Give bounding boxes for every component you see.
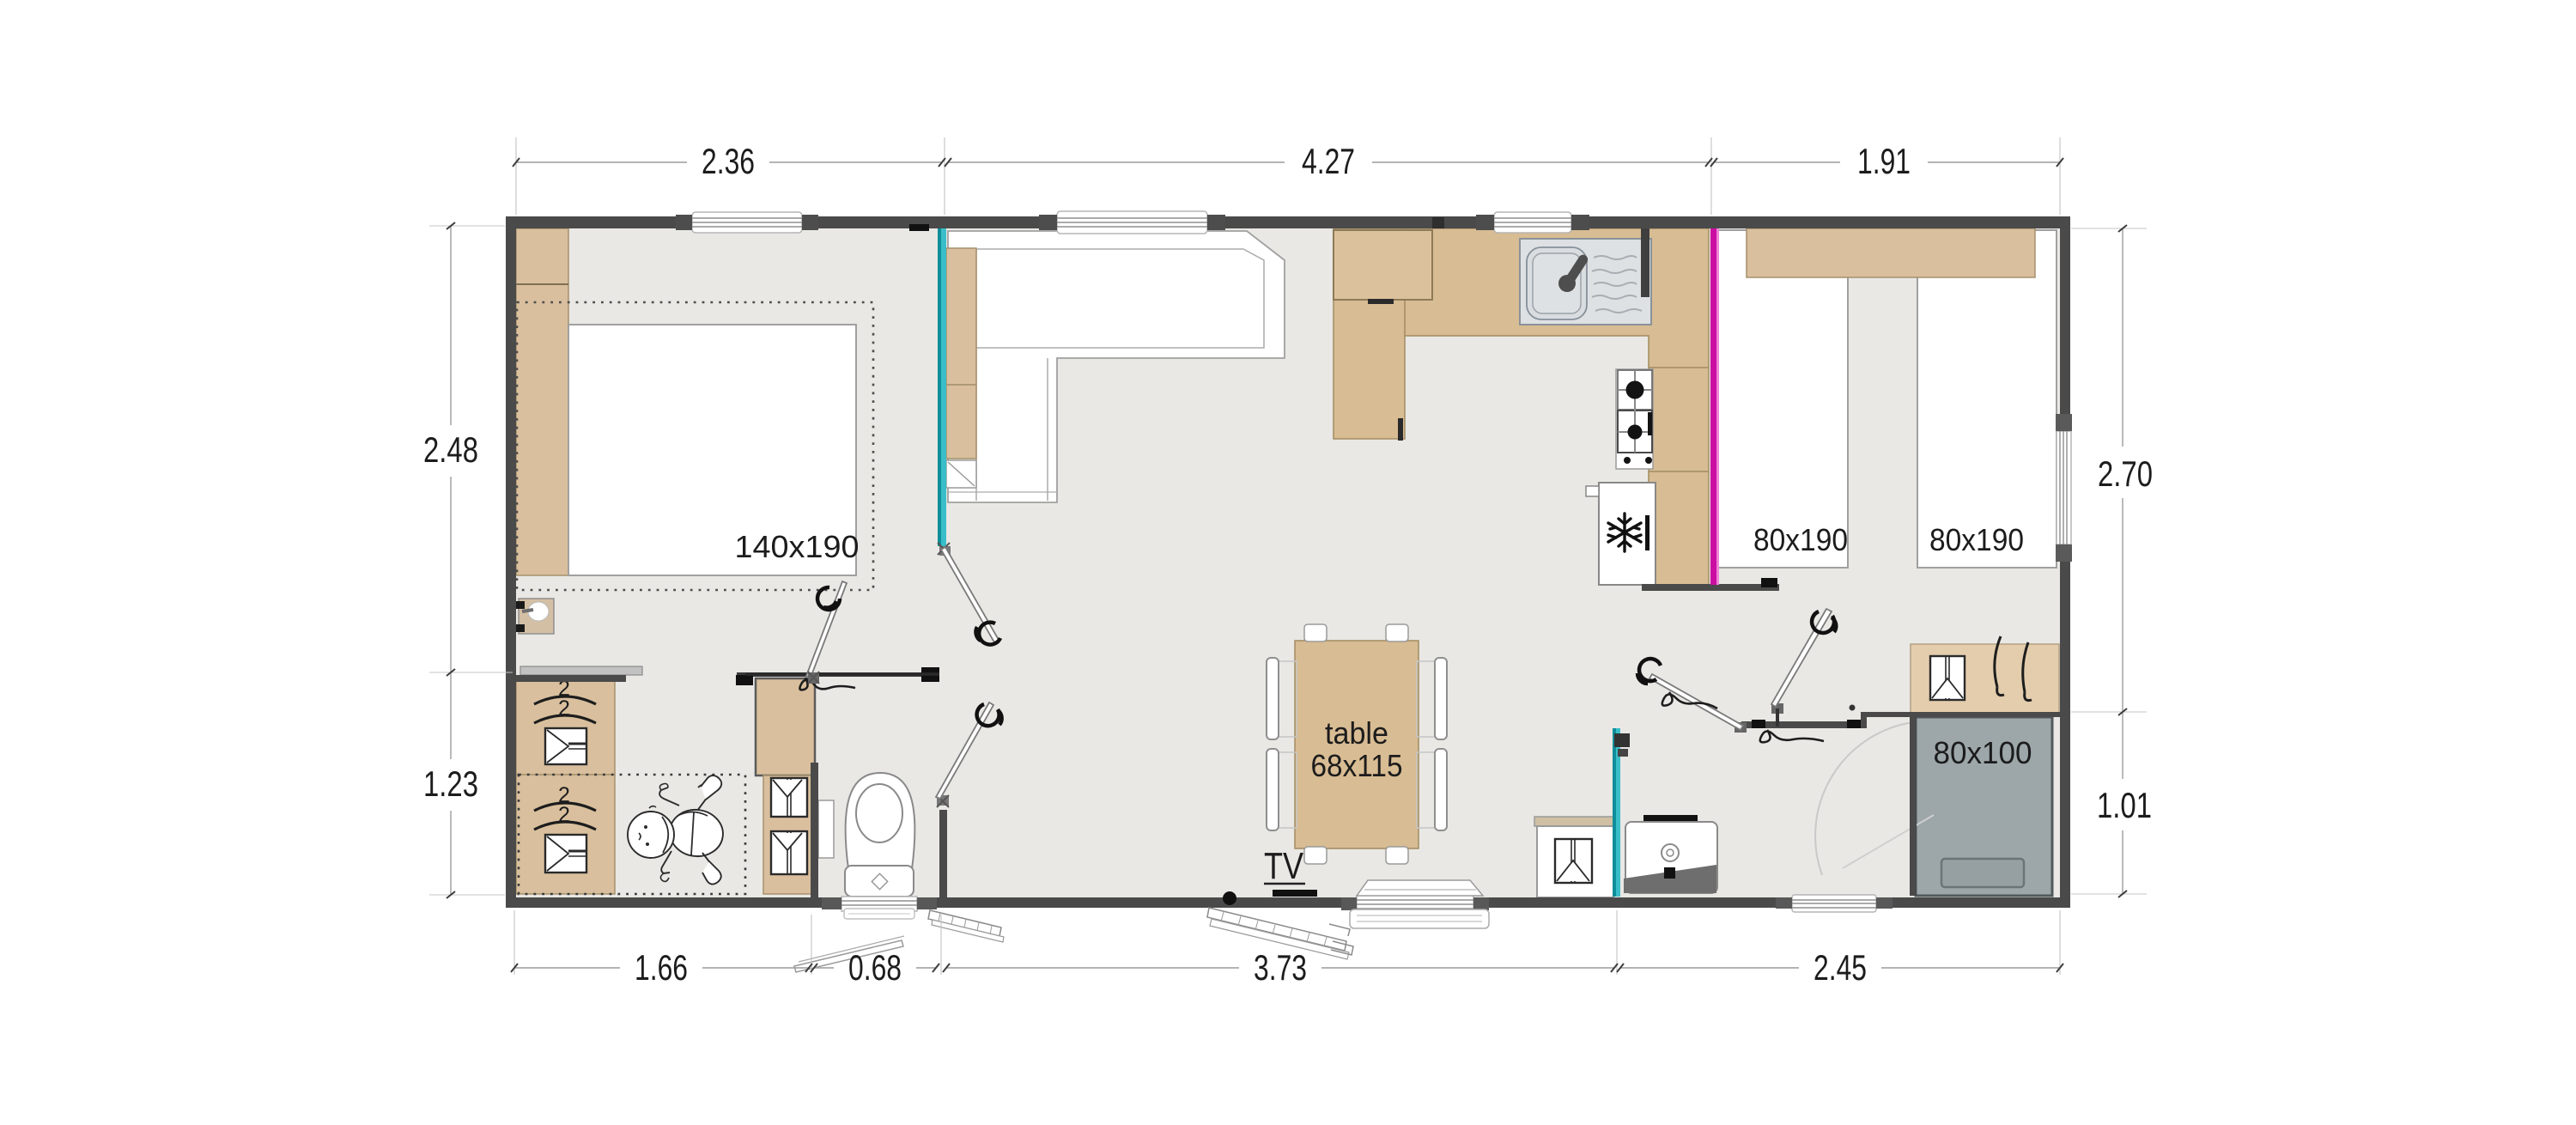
svg-text:2.70: 2.70 xyxy=(2098,453,2153,494)
svg-text:table: table xyxy=(1325,715,1388,751)
svg-text:1.66: 1.66 xyxy=(635,947,688,988)
svg-text:1.23: 1.23 xyxy=(423,763,478,804)
svg-text:2.45: 2.45 xyxy=(1814,947,1867,988)
svg-text:80x100: 80x100 xyxy=(1934,735,2032,770)
svg-text:4.27: 4.27 xyxy=(1302,141,1355,181)
svg-text:140x190: 140x190 xyxy=(735,529,860,564)
svg-text:80x190: 80x190 xyxy=(1753,522,1848,557)
svg-text:68x115: 68x115 xyxy=(1311,748,1403,783)
svg-text:2: 2 xyxy=(558,696,570,721)
svg-text:1.01: 1.01 xyxy=(2097,785,2152,825)
svg-text:2.36: 2.36 xyxy=(702,141,755,181)
svg-text:2.48: 2.48 xyxy=(423,429,478,470)
svg-text:3.73: 3.73 xyxy=(1254,947,1307,988)
svg-text:2: 2 xyxy=(558,803,570,827)
svg-text:80x190: 80x190 xyxy=(1929,522,2024,557)
svg-text:TV: TV xyxy=(1264,845,1304,887)
svg-text:1.91: 1.91 xyxy=(1857,141,1911,181)
svg-text:0.68: 0.68 xyxy=(848,947,902,988)
